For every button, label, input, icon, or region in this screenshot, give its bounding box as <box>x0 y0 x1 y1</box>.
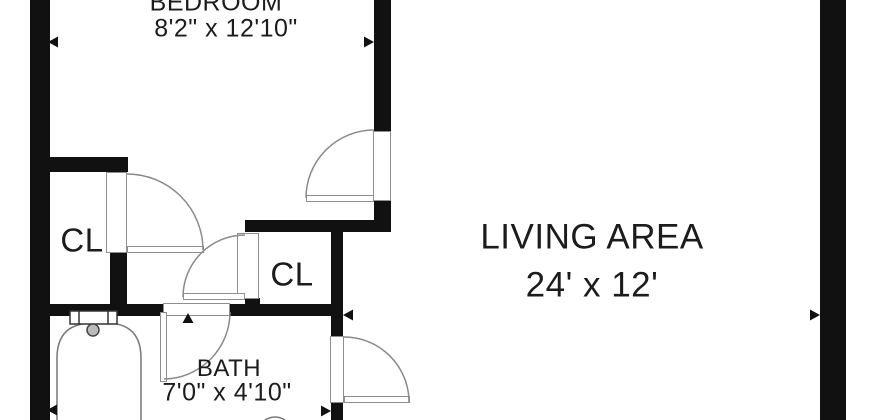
door-swing-closet-hall <box>183 235 245 297</box>
bath-label: BATH <box>197 357 261 381</box>
dim-arrow-bath-left-icon <box>47 405 57 416</box>
dim-arrow-living-right-icon <box>810 310 820 321</box>
closet-hall-label: CL <box>270 258 313 291</box>
bath-dimensions: 7'0" x 4'10" <box>162 381 291 406</box>
living-area-dimensions: 24' x 12' <box>526 268 659 303</box>
dim-arrow-bedroom-right-icon <box>364 37 374 48</box>
door-swing-closet-left <box>127 174 203 250</box>
dim-arrow-living-left-icon <box>343 310 353 321</box>
dim-arrow-bath-up-icon <box>183 313 194 323</box>
dim-arrow-bath-right-icon <box>321 406 331 417</box>
bathtub <box>57 323 141 420</box>
door-swing-living <box>344 337 409 402</box>
dim-arrow-bedroom-left-icon <box>48 37 58 48</box>
closet-left-label: CL <box>60 224 103 257</box>
bedroom-label: BEDROOM <box>150 0 283 16</box>
dimension-arrows <box>47 37 820 417</box>
faucet-deck <box>70 311 117 324</box>
door-swing-bedroom <box>306 130 374 198</box>
living-area-label: LIVING AREA <box>480 220 703 255</box>
faucet-spout <box>87 324 99 336</box>
floor-plan: BEDROOM 8'2" x 12'10" CL CL BATH 7'0" x … <box>0 0 870 420</box>
bedroom-dimensions: 8'2" x 12'10" <box>154 17 298 42</box>
tub-faucet <box>70 311 117 336</box>
plan-graphics <box>0 0 870 420</box>
